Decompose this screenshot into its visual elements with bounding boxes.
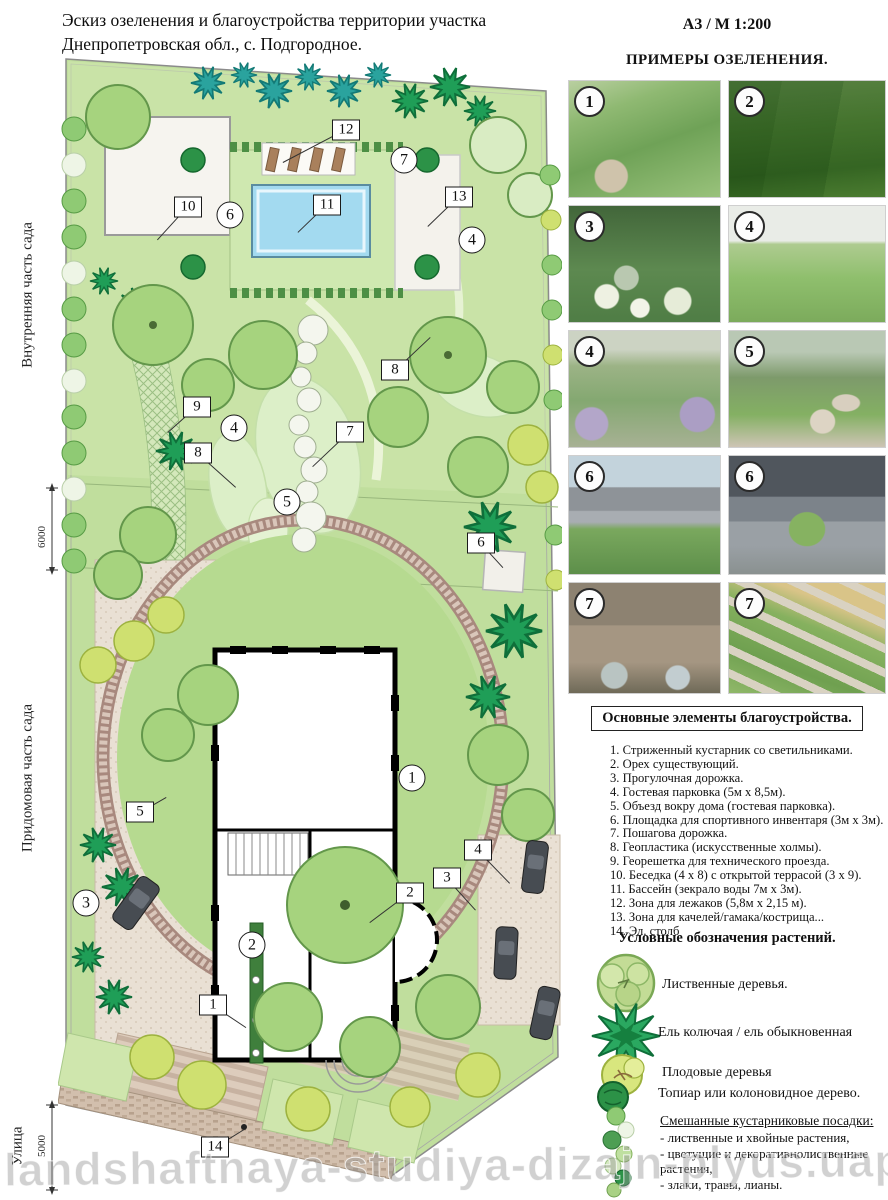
list-item: 8. Геопластика (искусственные холмы). <box>610 841 886 855</box>
plan-callout-square-12: 12 <box>332 120 360 141</box>
plan-callout-square-13: 13 <box>445 187 473 208</box>
sheet-title-line2: Днепропетровская обл., с. Подгородное. <box>62 32 562 56</box>
plan-callout-square-8: 8 <box>381 360 409 381</box>
plants-legend-heading: Условные обозначения растений. <box>568 930 886 947</box>
plan-callout-circle-4: 4 <box>221 415 248 442</box>
dimension-line-5000 <box>46 1100 58 1195</box>
zone-label-house-garden: Придомовая часть сада <box>20 704 37 852</box>
legend-mixed-heading: Смешанные кустарниковые посадки: <box>660 1113 873 1129</box>
plan-callout-square-8: 8 <box>184 443 212 464</box>
photo-number-badge: 1 <box>574 86 605 117</box>
dimension-line-6000 <box>46 483 58 575</box>
photo-number-badge: 4 <box>574 336 605 367</box>
elements-list-heading: Основные элементы благоустройства. <box>591 706 863 731</box>
plan-callout-square-14: 14 <box>201 1137 229 1158</box>
example-photo-2: 2 <box>728 80 886 198</box>
list-item: 9. Георешетка для технического проезда. <box>610 855 886 869</box>
plan-callout-square-2: 2 <box>396 883 424 904</box>
site-plan: 1210111389876523411476445132 <box>58 55 562 1195</box>
photo-number-badge: 2 <box>734 86 765 117</box>
list-item: 11. Бассейн (зекрало воды 7м х 3м). <box>610 883 886 897</box>
photo-number-badge: 3 <box>574 211 605 242</box>
elements-heading-wrap: Основные элементы благоустройства. <box>568 706 886 731</box>
list-item: 4. Гостевая парковка (5м х 8,5м). <box>610 786 886 800</box>
sheet-title: Эскиз озеленения и благоустройства терри… <box>62 8 562 56</box>
plan-callout-circle-5: 5 <box>274 489 301 516</box>
list-item: 12. Зона для лежаков (5,8м х 2,15 м). <box>610 897 886 911</box>
example-photo-1: 1 <box>568 80 721 198</box>
plan-callout-square-4: 4 <box>464 840 492 861</box>
photo-number-badge: 7 <box>574 588 605 619</box>
examples-section-title: ПРИМЕРЫ ОЗЕЛЕНЕНИЯ. <box>568 52 886 69</box>
plan-callout-square-3: 3 <box>433 868 461 889</box>
plan-callout-square-1: 1 <box>199 995 227 1016</box>
landscape-plan-sheet: { "title": { "line1": "Эскиз озеленения … <box>0 0 888 1200</box>
list-item: 3. Прогулочная дорожка. <box>610 772 886 786</box>
list-item: 7. Пошагова дорожка. <box>610 827 886 841</box>
example-photo-3: 3 <box>568 205 721 323</box>
mixed-shrubs-icon <box>596 1106 640 1200</box>
sheet-title-line1: Эскиз озеленения и благоустройства терри… <box>62 8 562 32</box>
list-item: 6. Площадка для спортивного инвентаря (3… <box>610 814 886 828</box>
plan-callout-circle-3: 3 <box>73 890 100 917</box>
zone-label-street: Улица <box>10 1126 27 1165</box>
plan-callout-square-7: 7 <box>336 422 364 443</box>
plan-callout-circle-2: 2 <box>239 932 266 959</box>
list-item: 1. Стриженный кустарник со светильниками… <box>610 744 886 758</box>
photo-number-badge: 6 <box>734 461 765 492</box>
photo-number-badge: 4 <box>734 211 765 242</box>
plan-callout-circle-4: 4 <box>459 227 486 254</box>
plan-callout-square-11: 11 <box>313 195 341 216</box>
elements-list: 1. Стриженный кустарник со светильниками… <box>610 744 886 939</box>
example-photo-6: 5 <box>728 330 886 448</box>
legend-label-topiary: Топиар или колоновидное дерево. <box>658 1086 860 1102</box>
plan-callout-circle-1: 1 <box>399 765 426 792</box>
plan-callout-circle-6: 6 <box>217 202 244 229</box>
example-photo-8: 6 <box>728 455 886 575</box>
plan-callout-circle-7: 7 <box>391 147 418 174</box>
plan-callouts-layer: 1210111389876523411476445132 <box>58 55 562 1195</box>
list-item: 10. Беседка (4 х 8) с открытой террасой … <box>610 869 886 883</box>
plan-callout-square-5: 5 <box>126 802 154 823</box>
plan-callout-square-6: 6 <box>467 533 495 554</box>
list-item: 2. Орех существующий. <box>610 758 886 772</box>
list-item: 5. Объезд вокру дома (гостевая парковка)… <box>610 800 886 814</box>
legend-mixed-item: - злаки, травы, лианы. <box>660 1177 884 1193</box>
example-photos-grid: 1 2 3 4 4 5 6 6 7 7 <box>568 80 886 694</box>
legend-label-fruit: Плодовые деревья <box>662 1065 772 1081</box>
photo-number-badge: 5 <box>734 336 765 367</box>
plan-callout-square-9: 9 <box>183 397 211 418</box>
photo-number-badge: 6 <box>574 461 605 492</box>
plan-callout-square-10: 10 <box>174 197 202 218</box>
example-photo-7: 6 <box>568 455 721 575</box>
list-item: 13. Зона для качелей/гамака/кострища... <box>610 911 886 925</box>
zone-label-inner-garden: Внутренняя часть сада <box>20 222 37 368</box>
example-photo-9: 7 <box>568 582 721 694</box>
legend-mixed-items: - лиственные и хвойные растения, - цвету… <box>660 1130 884 1192</box>
example-photo-4: 4 <box>728 205 886 323</box>
sheet-format-scale: А3 / М 1:200 <box>568 16 886 34</box>
legend-mixed-item: - цветущие и декоративнолиственные расте… <box>660 1146 884 1177</box>
legend-label-deciduous: Лиственные деревья. <box>662 977 788 993</box>
legend-mixed-item: - лиственные и хвойные растения, <box>660 1130 884 1146</box>
photo-number-badge: 7 <box>734 588 765 619</box>
example-photo-5: 4 <box>568 330 721 448</box>
example-photo-10: 7 <box>728 582 886 694</box>
legend-label-spruce: Ель колючая / ель обыкновенная <box>658 1025 852 1041</box>
